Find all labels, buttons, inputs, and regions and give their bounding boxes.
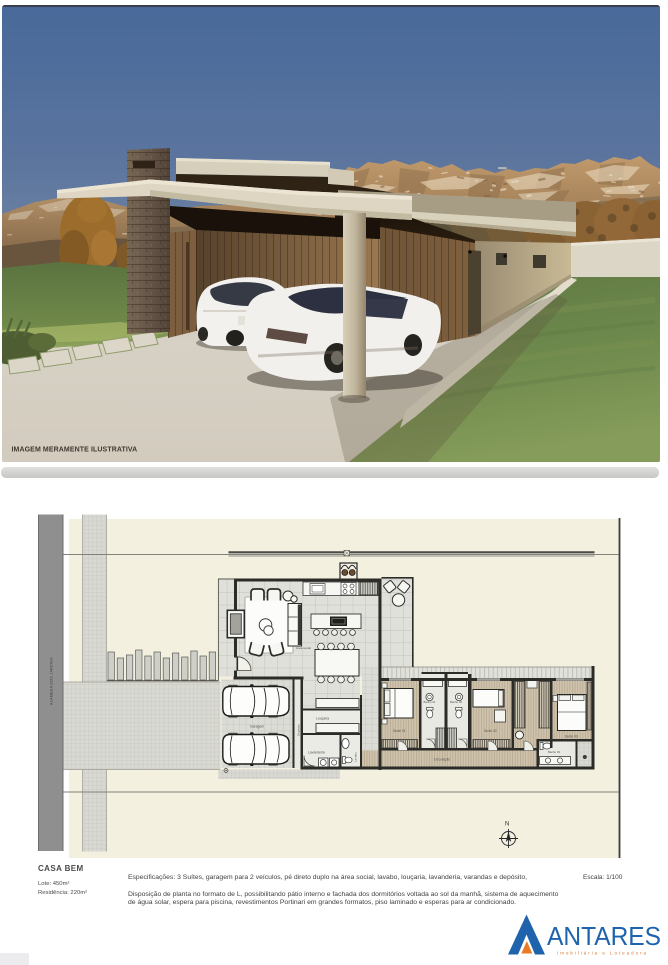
svg-text:Garagem: Garagem <box>250 725 264 729</box>
svg-text:Imobiliária e Loteadora: Imobiliária e Loteadora <box>557 951 648 956</box>
svg-text:Louçaria: Louçaria <box>316 717 329 721</box>
svg-text:ALAMEDA DOS JARDINS: ALAMEDA DOS JARDINS <box>50 657 54 705</box>
svg-text:IMAGEM MERAMENTE ILUSTRATIVA: IMAGEM MERAMENTE ILUSTRATIVA <box>12 447 138 454</box>
svg-text:Banho 03: Banho 03 <box>548 750 560 754</box>
svg-text:N: N <box>505 822 509 828</box>
svg-text:Suíte 01: Suíte 01 <box>393 729 406 733</box>
svg-text:Depósito: Depósito <box>296 724 300 736</box>
svg-text:Lavabo: Lavabo <box>354 752 358 762</box>
svg-text:Circulação: Circulação <box>434 758 450 762</box>
svg-text:Banho 01: Banho 01 <box>424 700 436 704</box>
svg-text:ANTARES: ANTARES <box>547 921 661 951</box>
svg-text:Suíte 02: Suíte 02 <box>484 729 497 733</box>
svg-text:Suíte 03: Suíte 03 <box>565 735 578 739</box>
svg-text:Banho 02: Banho 02 <box>450 700 462 704</box>
svg-text:Lavanderia: Lavanderia <box>308 751 325 755</box>
svg-text:Área social: Área social <box>296 646 311 650</box>
